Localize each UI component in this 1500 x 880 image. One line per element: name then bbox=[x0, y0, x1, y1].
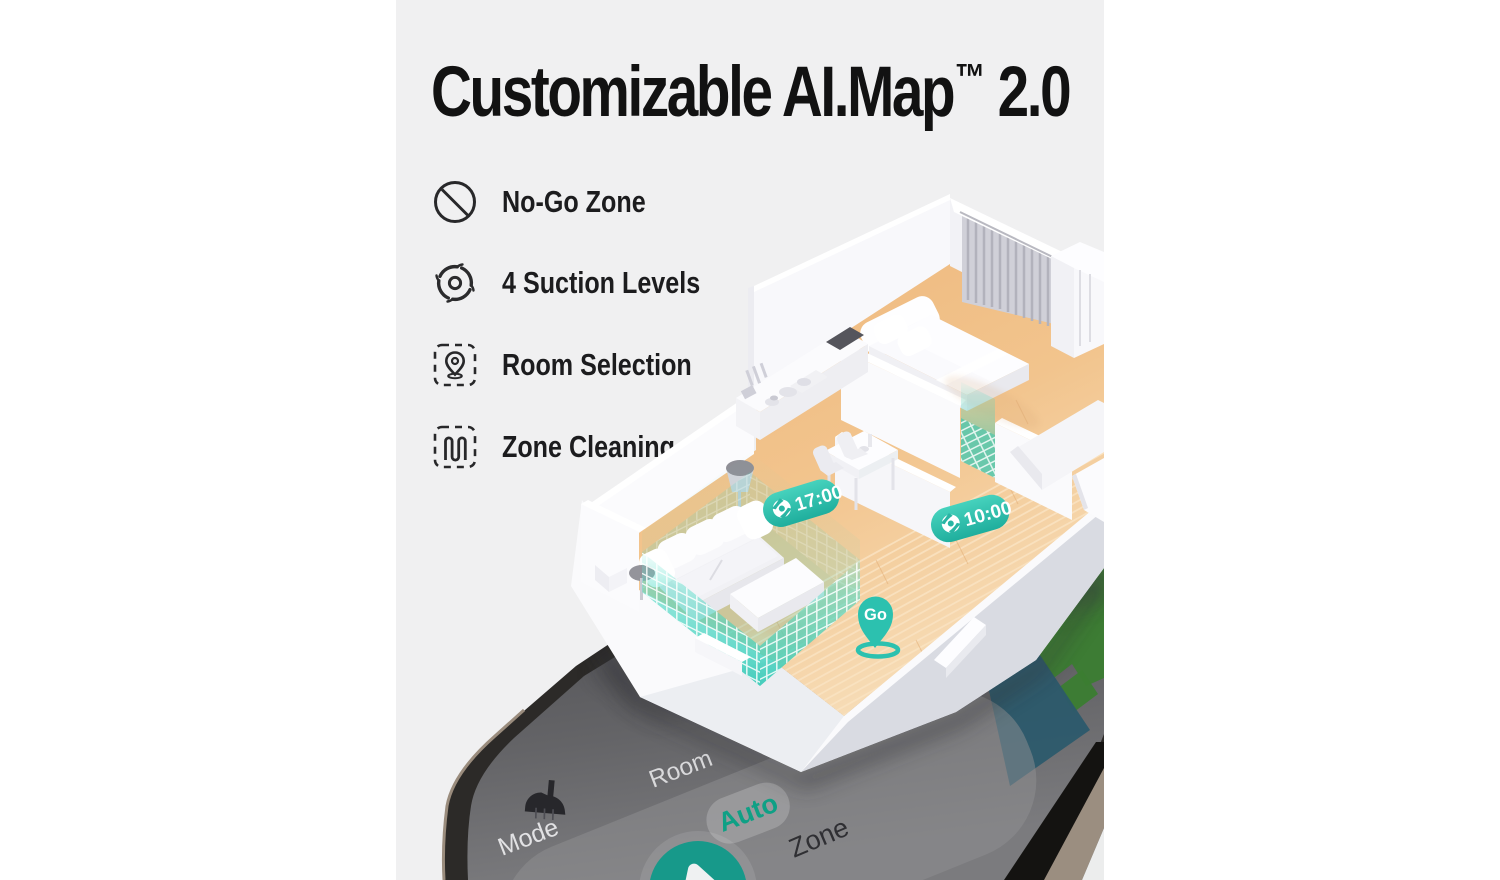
svg-text:Go: Go bbox=[864, 606, 887, 624]
